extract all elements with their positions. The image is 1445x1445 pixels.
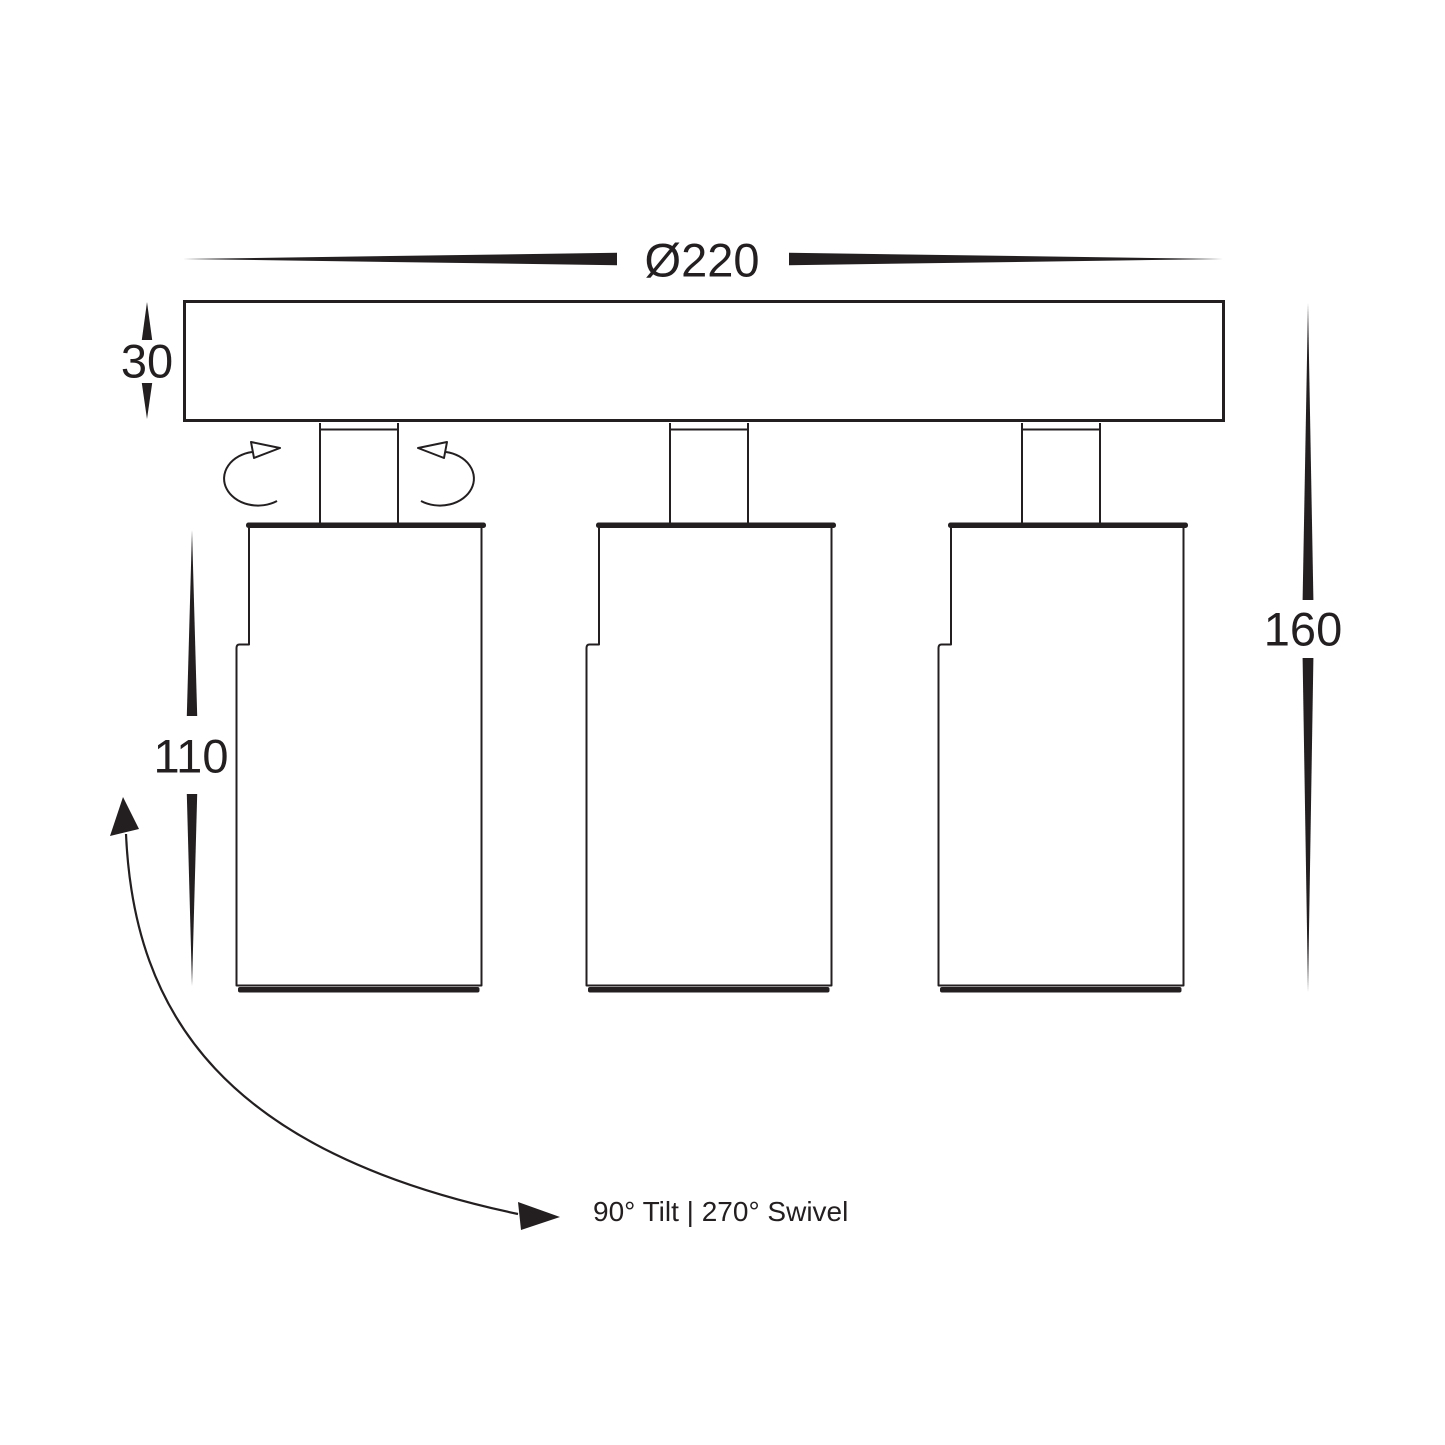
swivel-arrow-right-head-icon <box>418 442 447 458</box>
spotlight-fixture-3 <box>939 423 1189 993</box>
line-art <box>0 0 1445 1445</box>
dim-line-body-bottom <box>187 794 197 986</box>
swivel-arrow-left-arc-icon <box>224 452 277 506</box>
dim-line-overall-bottom <box>1303 658 1314 992</box>
dim-label-body-height: 110 <box>154 733 229 780</box>
swivel-arrow-right-arc-icon <box>421 452 474 506</box>
dim-label-diameter: Ø220 <box>645 237 760 284</box>
spotlight-fixture-1 <box>237 423 487 993</box>
mounting-plate <box>185 302 1224 421</box>
technical-drawing-canvas: Ø220 30 110 160 90° Tilt | 270° Swivel <box>0 0 1445 1445</box>
tilt-arrow-top-head <box>110 797 139 836</box>
tilt-arrow-bottom-head <box>518 1202 560 1230</box>
dim-label-plate-thickness: 30 <box>121 338 173 385</box>
adjustability-note: 90° Tilt | 270° Swivel <box>593 1198 848 1226</box>
dim-label-overall-height: 160 <box>1264 606 1342 653</box>
dim-line-body-top <box>187 530 197 716</box>
dim-line-diameter-right <box>789 253 1223 265</box>
dim-line-diameter-left <box>183 253 617 265</box>
dim-line-plate-bottom <box>142 383 152 419</box>
spotlight-fixture-2 <box>587 423 837 993</box>
swivel-arrow-left-head-icon <box>251 442 280 458</box>
dim-line-overall-top <box>1303 303 1314 600</box>
